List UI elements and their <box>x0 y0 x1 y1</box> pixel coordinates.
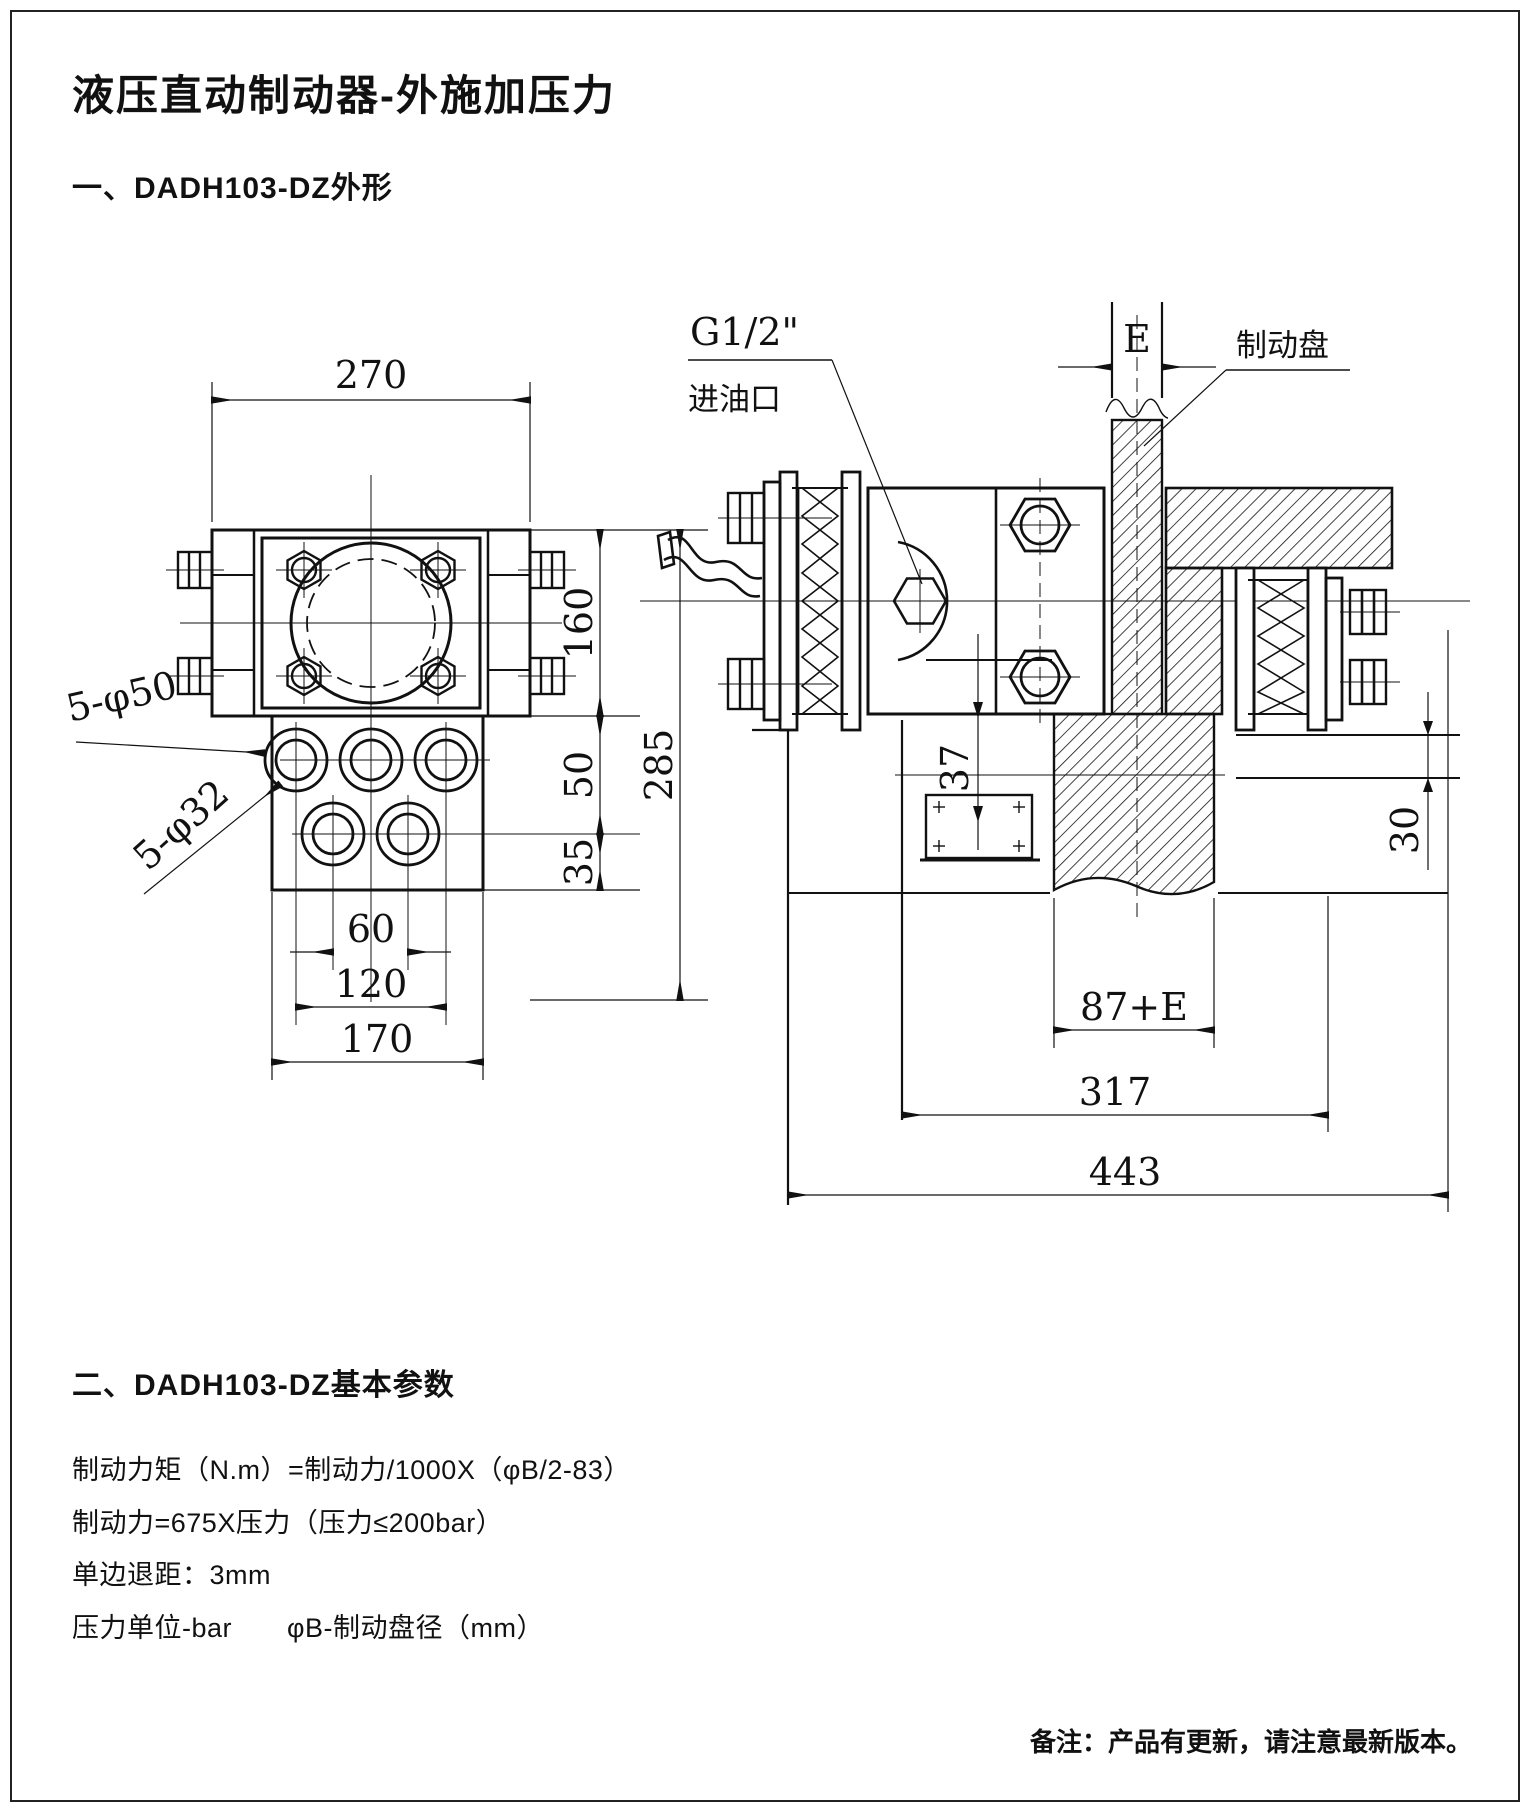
dim-37: 37 <box>933 744 977 792</box>
dim-160: 160 <box>557 587 601 660</box>
dim-30: 30 <box>1383 806 1427 854</box>
label-5-d32: 5-φ32 <box>125 771 238 879</box>
label-port-thread: G1/2" <box>690 310 799 354</box>
dim-35: 35 <box>557 838 601 886</box>
cable <box>658 532 762 596</box>
dim-87E: 87+E <box>1080 985 1188 1029</box>
page-title: 液压直动制动器-外施加压力 <box>72 62 616 123</box>
param-force: 制动力=675X压力（压力≤200bar） <box>72 1501 503 1540</box>
dim-170: 170 <box>341 1017 414 1061</box>
dim-50: 50 <box>557 751 601 799</box>
dim-E: E <box>1123 317 1151 361</box>
right-caliper <box>1166 488 1400 730</box>
side-view <box>640 302 1470 1212</box>
dim-443: 443 <box>1089 1150 1162 1194</box>
dim-120: 120 <box>335 962 408 1006</box>
param-retract: 单边退距：3mm <box>72 1553 271 1592</box>
param-units: 压力单位-bar φB-制动盘径（mm） <box>72 1606 544 1645</box>
drawing-sheet: 液压直动制动器-外施加压力 一、DADH103-DZ外形 <box>0 0 1530 1812</box>
section2-heading: 二、DADH103-DZ基本参数 <box>72 1360 455 1404</box>
technical-drawing: 270 60 120 170 160 50 35 285 5-φ50 5-φ32 <box>40 230 1490 1240</box>
footer-note: 备注：产品有更新，请注意最新版本。 <box>1030 1722 1472 1759</box>
dim-60: 60 <box>347 907 395 951</box>
dim-317: 317 <box>1079 1070 1152 1114</box>
bolt-top <box>1000 499 1080 551</box>
dim-270: 270 <box>335 353 408 397</box>
section1-heading: 一、DADH103-DZ外形 <box>72 163 393 207</box>
dim-285: 285 <box>637 729 681 802</box>
label-5-d50: 5-φ50 <box>62 663 181 731</box>
param-torque: 制动力矩（N.m）=制动力/1000X（φB/2-83） <box>72 1448 631 1487</box>
label-port-name: 进油口 <box>688 382 781 417</box>
bolt-bottom <box>1000 651 1080 703</box>
label-disc: 制动盘 <box>1236 328 1329 363</box>
